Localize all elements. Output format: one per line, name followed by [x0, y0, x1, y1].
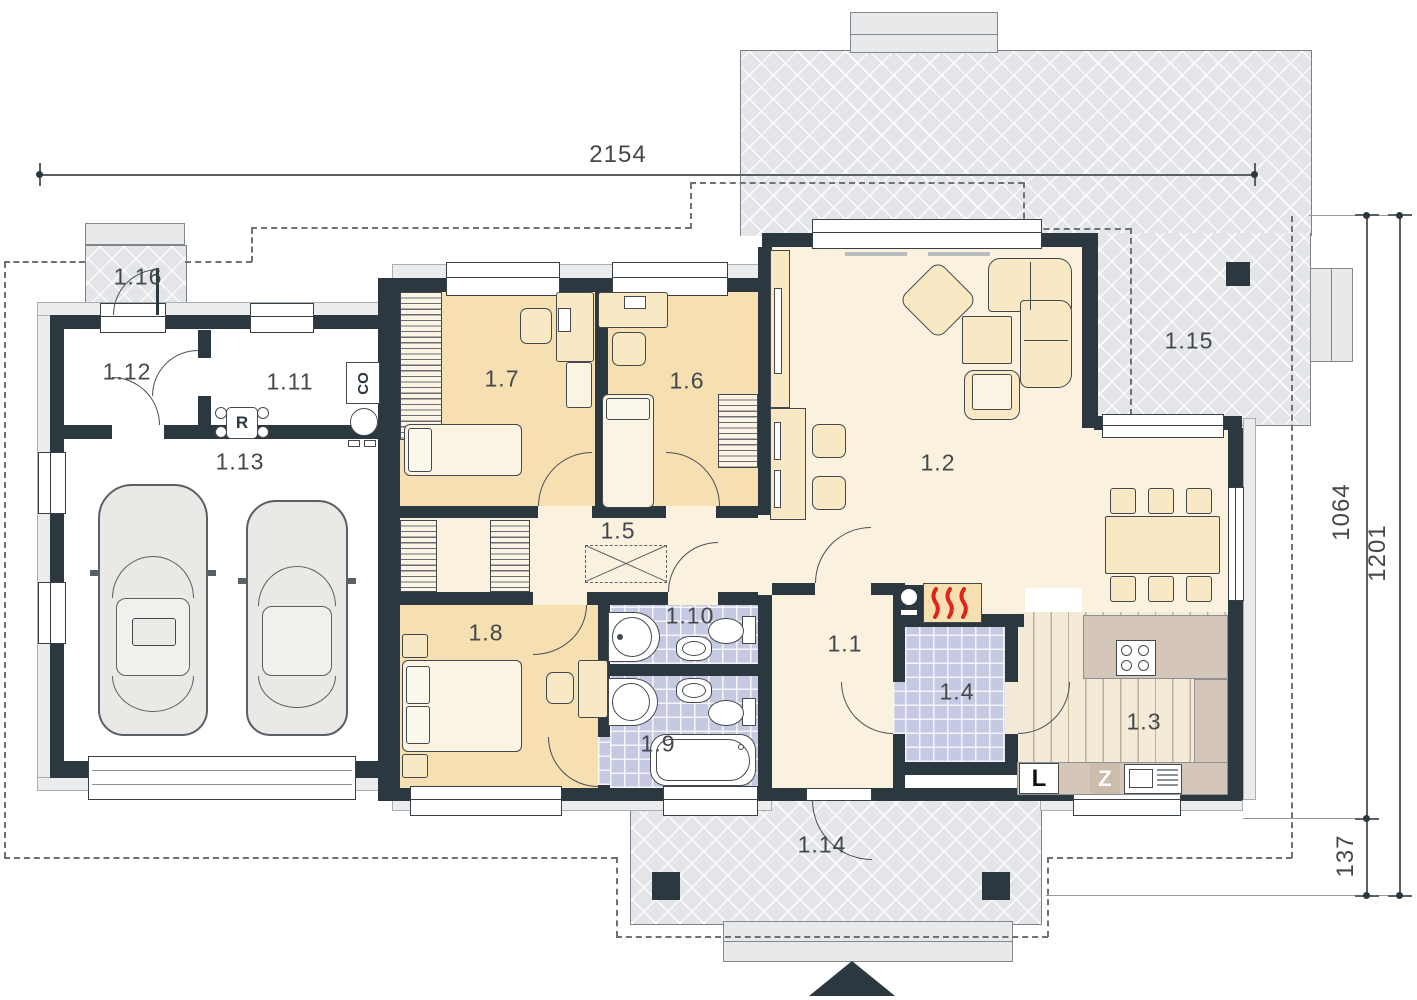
roofline [616, 857, 618, 937]
room-label-1-10: 1.10 [666, 603, 715, 630]
window [38, 452, 66, 514]
wardrobe [400, 520, 437, 592]
manifold-label: R [236, 413, 248, 433]
roofline [185, 261, 252, 263]
armchair-seat [972, 374, 1012, 410]
car-mirror [206, 570, 216, 576]
room-label-1-7: 1.7 [485, 366, 520, 393]
room-label-1-11: 1.11 [266, 369, 313, 396]
door-gap [815, 583, 871, 595]
door-gap [533, 592, 587, 605]
dining-chair [1186, 488, 1212, 514]
monitor [624, 296, 646, 309]
wardrobe [490, 520, 530, 592]
room-label-1-14: 1.14 [798, 832, 847, 859]
sink-drainboard [1157, 769, 1178, 788]
entry-porch-step [85, 223, 185, 245]
bidet-inner [682, 683, 706, 698]
dining-chair [1110, 488, 1136, 514]
roofline [4, 857, 617, 859]
fridge-label: L [1032, 765, 1047, 793]
window-dining [1228, 487, 1244, 601]
terrace-upper [740, 50, 1312, 236]
burner-icon [1138, 660, 1149, 671]
floor-plan: CO R [0, 0, 1417, 1000]
nightstand [402, 754, 428, 778]
pillow [606, 398, 650, 420]
room-label-1-5: 1.5 [601, 518, 636, 545]
closet-strip [893, 775, 1017, 788]
utility-fixture [364, 440, 376, 447]
toilet-bowl [708, 700, 744, 726]
toilet-tank [742, 616, 756, 644]
sink-bowl [612, 683, 650, 721]
dim-dot [1251, 171, 1258, 178]
bidet-inner [682, 641, 706, 656]
kitchen-counter-side [1194, 679, 1228, 763]
cooktop [1116, 640, 1156, 676]
desk-slot [774, 422, 781, 460]
chimney-top [850, 12, 998, 36]
burner-icon [1121, 645, 1132, 656]
stool [546, 672, 574, 704]
window [612, 262, 728, 296]
flame-icon [928, 587, 978, 619]
dimension-line-top [40, 174, 1255, 176]
dishwasher-label: Z [1098, 766, 1111, 792]
window [663, 786, 758, 816]
dim-label-bottom-right: 137 [1332, 834, 1360, 877]
dim-label-right-outer: 1201 [1364, 524, 1392, 581]
room-label-1-9: 1.9 [641, 731, 676, 758]
fireplace-box [923, 583, 982, 623]
slider-mark [845, 252, 907, 256]
chair [812, 424, 846, 458]
toilet-tank [742, 698, 756, 726]
roofline [690, 183, 692, 229]
nightstand [402, 634, 428, 658]
desk-chair [520, 308, 552, 344]
fridge: L [1019, 763, 1059, 794]
terrace-column [1226, 262, 1250, 286]
room-label-1-1: 1.1 [828, 631, 863, 658]
desk-chair [612, 332, 646, 366]
plinth-top-left [37, 302, 390, 316]
slider-mark [928, 252, 990, 256]
room-label-1-6: 1.6 [670, 368, 705, 395]
car-mirror [346, 578, 356, 584]
dim-dot [1396, 212, 1403, 219]
roofline [1130, 228, 1132, 425]
dressing-table [578, 660, 608, 718]
heating-manifold: R [226, 407, 258, 439]
dining-chair [1110, 576, 1136, 602]
wall-segment [893, 762, 1024, 775]
boiler-label: CO [355, 372, 372, 395]
shelf-slot [774, 288, 782, 374]
coffee-table [962, 316, 1012, 364]
sofa-cushion-line [1024, 340, 1068, 341]
room-label-1-12: 1.12 [103, 359, 152, 386]
window [250, 303, 314, 333]
roofline [690, 182, 1024, 184]
room-label-1-15: 1.15 [1165, 328, 1214, 355]
dining-chair [1186, 576, 1212, 602]
terrace-step-1 [1310, 268, 1332, 362]
sink-tap [617, 634, 623, 640]
bathtub-drain [738, 744, 744, 750]
porch-column-left [652, 872, 680, 900]
dim-label-top: 2154 [589, 141, 646, 169]
wall-segment [1228, 428, 1243, 800]
garage-door [88, 756, 356, 800]
roofline [1047, 857, 1292, 859]
car-roof [262, 606, 332, 676]
porch-stair-2 [723, 941, 1013, 962]
dim-dot [1363, 892, 1370, 899]
wall-segment [50, 315, 64, 775]
monitor [558, 308, 571, 332]
burner-icon [1121, 660, 1132, 671]
door-gap [1005, 682, 1018, 734]
extension-line [1046, 895, 1405, 896]
room-label-1-16: 1.16 [114, 264, 163, 291]
window [38, 582, 66, 644]
pillow [406, 666, 430, 704]
dim-dot [1363, 815, 1370, 822]
window-living-top [812, 219, 1042, 249]
wall-segment [198, 330, 211, 358]
wall-seg [198, 396, 211, 439]
dining-table [1105, 516, 1220, 574]
roofline [4, 262, 6, 858]
manifold-valve [257, 426, 269, 438]
desk-slot [774, 470, 781, 508]
roofline [616, 936, 1048, 938]
chair [812, 476, 846, 510]
door-gap [666, 506, 716, 518]
dimension-line-right-outer [1399, 215, 1401, 897]
boiler-unit: CO [346, 362, 380, 404]
porch-stair-1 [723, 921, 1013, 942]
room-label-1-3: 1.3 [1127, 709, 1162, 736]
window [410, 786, 562, 816]
plinth-right [1243, 418, 1256, 800]
pillow [406, 706, 430, 744]
wardrobe [400, 292, 442, 440]
wardrobe [718, 394, 758, 468]
door-gap [893, 682, 905, 734]
roofline [251, 227, 691, 229]
roofline [1291, 216, 1293, 858]
pillow [408, 428, 432, 472]
sofa-cushion-line [1030, 262, 1031, 310]
water-heater [350, 408, 378, 436]
window [446, 262, 560, 296]
sink-basin [1129, 769, 1153, 788]
kitchen-sink [1124, 764, 1182, 794]
door-gap [598, 737, 610, 785]
roofline [251, 228, 253, 262]
extension-line [1243, 818, 1372, 819]
garage-door-line [92, 784, 352, 785]
dim-dot [1363, 212, 1370, 219]
dishwasher: Z [1090, 763, 1120, 794]
wall-segment [610, 664, 758, 676]
garage-door-line [92, 770, 352, 771]
fireplace-circle [901, 589, 917, 605]
fireplace-bar [901, 610, 917, 615]
room-label-1-4: 1.4 [940, 679, 975, 706]
dining-chair [1148, 576, 1174, 602]
room-label-1-13: 1.13 [216, 449, 265, 476]
door-gap [198, 358, 211, 396]
dining-chair [1148, 488, 1174, 514]
car-sunroof [132, 618, 176, 646]
dim-label-right-inner: 1064 [1328, 483, 1356, 540]
wall-segment [378, 278, 400, 801]
room-label-1-2: 1.2 [921, 450, 956, 477]
utility-fixture [348, 440, 360, 447]
chimney-base [850, 34, 998, 53]
desk-return [566, 362, 592, 408]
burner-icon [1138, 645, 1149, 656]
terrace-step-2 [1331, 268, 1353, 362]
porch-column-right [982, 872, 1010, 900]
dim-dot [1396, 892, 1403, 899]
roofline [4, 261, 85, 263]
manifold-valve [257, 407, 269, 419]
dim-dot [36, 171, 43, 178]
roofline [1047, 857, 1049, 937]
entrance-arrow-icon [809, 961, 895, 996]
window-terrace [1102, 414, 1224, 438]
opening [758, 515, 772, 595]
door-gap [538, 506, 592, 518]
room-label-1-8: 1.8 [469, 620, 504, 647]
car-mirror [90, 570, 100, 576]
door-gap [112, 425, 164, 439]
car-mirror [238, 578, 248, 584]
corner-sofa-side [1020, 300, 1072, 388]
plinth-left [37, 302, 51, 791]
wall-segment [1082, 233, 1098, 428]
